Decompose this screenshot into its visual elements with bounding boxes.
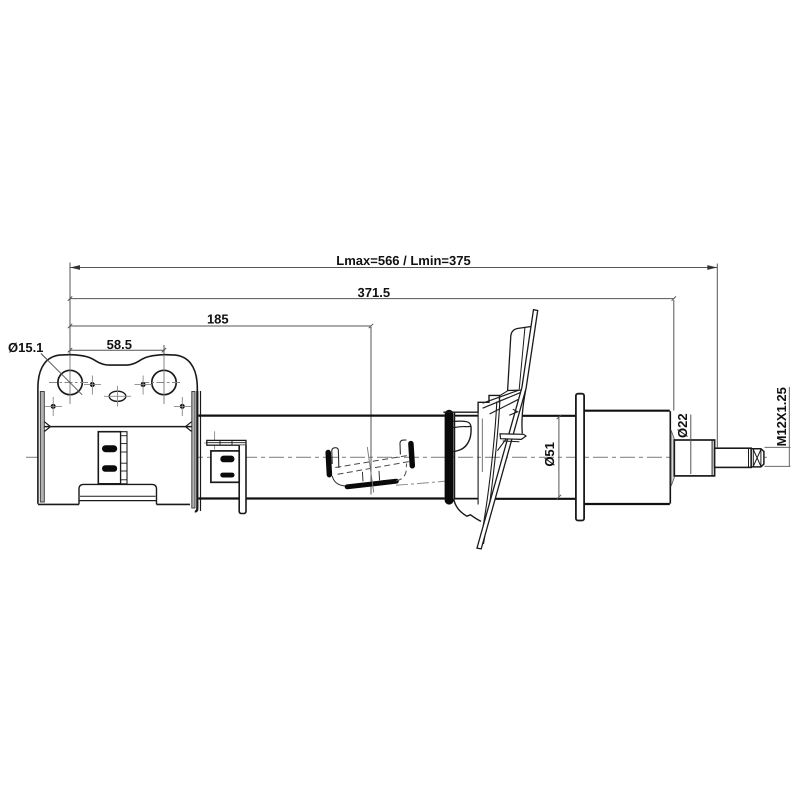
svg-text:Ø22: Ø22: [675, 413, 690, 438]
svg-text:58.5: 58.5: [107, 337, 132, 352]
svg-text:Ø51: Ø51: [542, 442, 557, 467]
svg-text:M12X1.25: M12X1.25: [774, 387, 789, 446]
svg-text:Ø15.1: Ø15.1: [8, 340, 43, 355]
svg-text:Lmax=566 / Lmin=375: Lmax=566 / Lmin=375: [336, 253, 470, 268]
svg-text:185: 185: [207, 311, 229, 326]
svg-text:371.5: 371.5: [358, 285, 391, 300]
